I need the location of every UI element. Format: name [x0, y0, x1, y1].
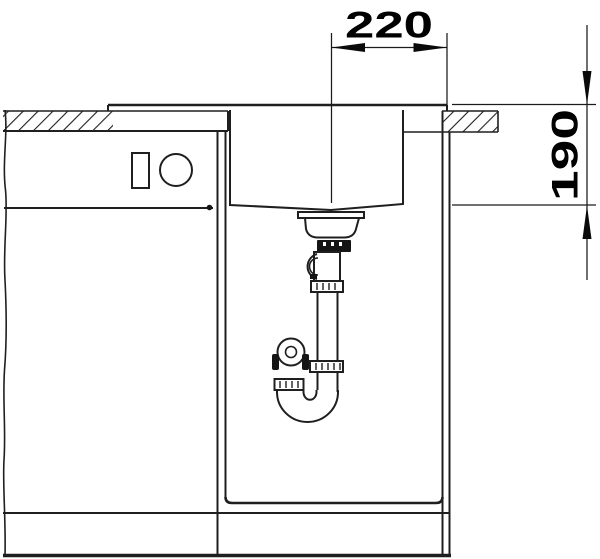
- cabinet-door-knob: [207, 205, 213, 211]
- sink-rim: [108, 105, 447, 131]
- sink-installation-drawing: 220 190: [0, 0, 600, 559]
- arrow-up-icon: [583, 206, 592, 240]
- dimension-width-label: 220: [345, 5, 433, 46]
- arrow-down-icon: [583, 71, 592, 105]
- sink-base-cabinet: [3, 111, 450, 555]
- countertop-right-section: [403, 111, 498, 132]
- siphon-trap: [272, 252, 343, 422]
- appliance-knob: [160, 154, 192, 186]
- dimension-depth-label: 190: [545, 109, 586, 201]
- break-line: [4, 110, 7, 556]
- drain-strainer: [298, 212, 364, 252]
- appliance-display: [132, 153, 149, 188]
- adjacent-appliance-panel: [4, 153, 213, 210]
- countertop-left-section: [3, 111, 228, 131]
- technical-drawing-canvas: 220 190: [0, 0, 600, 559]
- dimension-depth: 190: [452, 25, 596, 280]
- sink-bowl: [230, 110, 403, 210]
